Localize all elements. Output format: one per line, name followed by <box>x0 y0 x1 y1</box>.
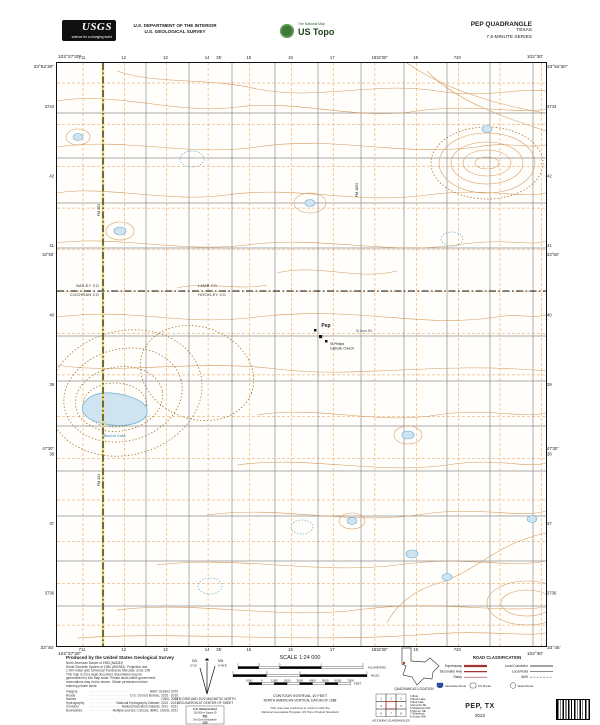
scalebar-mi-label: 0 <box>299 670 301 674</box>
grid-tick-top: 720 <box>454 55 462 60</box>
corner-lat-label: 33°45' <box>40 645 54 651</box>
grid-tick-left: 39 <box>49 382 54 387</box>
grid-tick-left: 3743 <box>45 104 55 109</box>
road-label: FM 1894 <box>355 183 359 197</box>
scalebar-km-label: 0 <box>279 662 281 666</box>
dept-line: U.S. DEPARTMENT OF THE INTERIOR <box>133 23 217 28</box>
grid-tick-left: 41 <box>49 243 54 248</box>
scalebar-ft-unit: FEET <box>354 682 361 686</box>
grid-tick-bottom: 19 <box>413 647 418 652</box>
declination-caption: DECLINATION AT CENTER OF SHEET <box>177 701 234 705</box>
lake-label: Illusion Lake <box>101 433 126 438</box>
scalebar-km-label: 2 <box>362 662 364 666</box>
grid-tick-bottom: 720 <box>454 647 462 652</box>
road-class-label: Expressway <box>445 664 463 668</box>
scalebar-km-label: 1 <box>237 662 239 666</box>
shield-label: Interstate Route <box>445 684 467 688</box>
lat-edge-label: 47'30" <box>547 446 559 451</box>
scalebar-mi <box>300 675 367 677</box>
grid-tick-top: 17 <box>330 55 335 60</box>
scalebar-mi <box>233 675 267 677</box>
church-label: St Philips <box>330 342 344 346</box>
barcode <box>556 699 590 720</box>
us-route-shield-icon <box>470 683 476 688</box>
quad-location-marker <box>403 662 405 664</box>
credit-line: entering private lands. <box>66 684 97 688</box>
gn-label: GN <box>192 659 198 663</box>
shield-label: US Route <box>478 684 491 688</box>
scalebar-ft-label: 3000 <box>296 678 303 682</box>
grid-tick-right: 37 <box>547 521 552 526</box>
grid-tick-top: 12 <box>121 55 126 60</box>
source-name: Boundaries <box>66 709 83 713</box>
grid-tick-left: 42 <box>49 174 54 179</box>
grid-tick-bottom: 15 <box>246 647 251 652</box>
grid-tick-right: 3736 <box>547 591 557 596</box>
scalebar-km <box>259 667 280 669</box>
product-standard-note: National Geospatial Program US Topo Prod… <box>261 710 339 714</box>
scalebar-km <box>238 667 259 669</box>
declination-diagram <box>200 658 215 694</box>
county-label: HOCKLEY CO <box>198 293 226 297</box>
texas-inset <box>402 648 439 685</box>
grid-tick-left: 37 <box>49 521 54 526</box>
scalebar-mi-label: 1 <box>366 670 368 674</box>
lat-edge-label: 47'30" <box>42 446 54 451</box>
quadrangle-series: 7.5-MINUTE SERIES <box>486 34 532 40</box>
usng-zone: 13S <box>202 720 207 724</box>
scalebar-ft <box>274 683 287 685</box>
adjoining-quad-number: 1 <box>380 697 382 701</box>
mn-label: MN <box>218 659 224 663</box>
scalebar-ft <box>249 683 262 685</box>
road-label: FM 303 <box>97 474 101 486</box>
inset-caption: QUADRANGLE LOCATION <box>394 687 434 691</box>
quadrangle-state: TEXAS <box>516 27 532 33</box>
map-sheet-title: PEP, TX <box>430 703 530 710</box>
road-class-label: 4WD <box>521 675 529 679</box>
adjoining-caption: ADJOINING QUADRANGLES <box>372 719 410 723</box>
lon-edge-label: 35' <box>216 647 222 652</box>
scalebar-ft-label: 1000 <box>246 678 253 682</box>
grid-tick-left: 38 <box>49 452 54 457</box>
church-label: Catholic Church <box>330 347 354 351</box>
scalebar-km-label: 1 <box>320 662 322 666</box>
adjoining-quad-number: 5 <box>400 704 402 708</box>
grid-tick-bottom: 711 <box>79 647 86 652</box>
scalebar-ft-label: 4000 <box>309 678 316 682</box>
scalebar-ft <box>300 683 313 685</box>
grid-tick-left: 3736 <box>45 591 55 596</box>
adjoining-quad-number: 3 <box>400 697 402 701</box>
source-value: Multiple sources; Census, IBWC, USGS, 20… <box>113 709 179 713</box>
scalebar-ft <box>313 683 326 685</box>
lat-edge-label: 33°50' <box>547 252 559 257</box>
adjoining-quad-name: 8 Smyer NW <box>410 715 426 719</box>
scalebar-km-unit: KILOMETERS <box>368 666 386 670</box>
state-route-shield-icon <box>510 683 516 689</box>
usgs-topo-sheet: USGS science for a changing world US Top… <box>0 0 600 725</box>
scale-title: SCALE 1:24 000 <box>280 655 321 661</box>
adjoining-quad-number: 8 <box>400 712 402 716</box>
grid-tick-bottom: 14 <box>205 647 210 652</box>
grid-tick-right: 39 <box>547 382 552 387</box>
shield-label: State Route <box>518 684 534 688</box>
scalebar-mi-unit: MILES <box>371 674 380 678</box>
grid-tick-right: 41 <box>547 243 552 248</box>
grid-tick-bottom: 12 <box>121 647 126 652</box>
county-label: COCHRAN CO <box>70 293 99 297</box>
county-label: LAMB CO <box>198 284 217 288</box>
interstate-shield-icon <box>437 683 443 688</box>
mn-value: 6°46'E <box>218 664 227 668</box>
grid-tick-top: 19 <box>413 55 418 60</box>
grid-tick-right: 40 <box>547 313 552 318</box>
lon-edge-label: 32'30" <box>376 647 388 652</box>
town-label: Pep <box>321 323 330 329</box>
scalebar-ft <box>287 683 300 685</box>
scalebar-ft <box>262 683 275 685</box>
county-label: BAILEY CO <box>76 284 99 288</box>
grid-tick-top: 13 <box>163 55 168 60</box>
corner-lat-label: 33°45' <box>547 645 561 651</box>
road-class-label: Ramp <box>453 675 462 679</box>
grid-tick-right: 38 <box>547 452 552 457</box>
marginalia-overlay: 102°37'30"33°52'30"102°30'33°52'30"33°45… <box>0 0 600 725</box>
scalebar-ft-label: 0 <box>261 678 263 682</box>
scalebar-mi-label: 1 <box>232 670 234 674</box>
scalebar-km <box>321 667 363 669</box>
grid-tick-top: 16 <box>288 55 293 60</box>
contour-interval-note: CONTOUR INTERVAL 10 FEET <box>273 694 328 698</box>
grid-tick-right: 42 <box>547 174 552 179</box>
adjoining-quad-number: 7 <box>390 712 392 716</box>
lon-edge-label: 35' <box>216 55 222 60</box>
scalebar-ft-label: 2000 <box>284 678 291 682</box>
scalebar-ft-label: 6000 <box>335 678 342 682</box>
road-label: FM 303 <box>97 204 101 216</box>
ustopo-tagline: The National Map <box>298 22 325 26</box>
lat-edge-label: 33°50' <box>42 252 54 257</box>
grid-tick-bottom: 16 <box>288 647 293 652</box>
corner-lat-label: 33°52'30" <box>33 64 54 70</box>
map-year: 2022 <box>475 713 486 718</box>
scalebar-ft-label: 5000 <box>322 678 329 682</box>
grid-tick-bottom: 13 <box>163 647 168 652</box>
grid-tick-top: 711 <box>79 55 86 60</box>
grid-tick-bottom: 17 <box>330 647 335 652</box>
road-class-label: Local Road <box>512 670 528 674</box>
gn-value: 0°16' <box>190 664 197 668</box>
scalebar-km <box>280 667 322 669</box>
corner-lat-label: 33°52'30" <box>547 64 568 70</box>
street-label: St Anns Rd <box>356 329 372 333</box>
scalebar-mi-label: .5 <box>265 670 268 674</box>
dept-line: U.S. GEOLOGICAL SURVEY <box>144 29 205 34</box>
credit-title: Produced by the United States Geological… <box>66 655 174 660</box>
road-class-label: Secondary Hwy <box>440 670 463 674</box>
scalebar-mi <box>267 675 301 677</box>
lon-edge-label: 32'30" <box>376 55 388 60</box>
grid-tick-top: 15 <box>246 55 251 60</box>
grid-tick-top: 14 <box>205 55 210 60</box>
grid-tick-left: 40 <box>49 313 54 318</box>
road-class-title: ROAD CLASSIFICATION <box>473 655 521 660</box>
adjoining-quad-number: 6 <box>380 712 382 716</box>
grid-tick-right: 3743 <box>547 104 557 109</box>
adjoining-quad-number: 2 <box>390 697 392 701</box>
scalebar-ft-label: 1000 <box>271 678 278 682</box>
scalebar-ft <box>325 683 338 685</box>
corner-lon-label: 102°30' <box>527 54 543 60</box>
scalebar-km-label: .5 <box>258 662 261 666</box>
vertical-datum-note: NORTH AMERICAN VERTICAL DATUM OF 1988 <box>264 699 337 703</box>
road-class-label: Local Connector <box>505 664 529 668</box>
adjoining-quad-number: 4 <box>380 704 382 708</box>
corner-lon-label: 102°30' <box>527 651 543 657</box>
scalebar-ft <box>338 683 351 685</box>
